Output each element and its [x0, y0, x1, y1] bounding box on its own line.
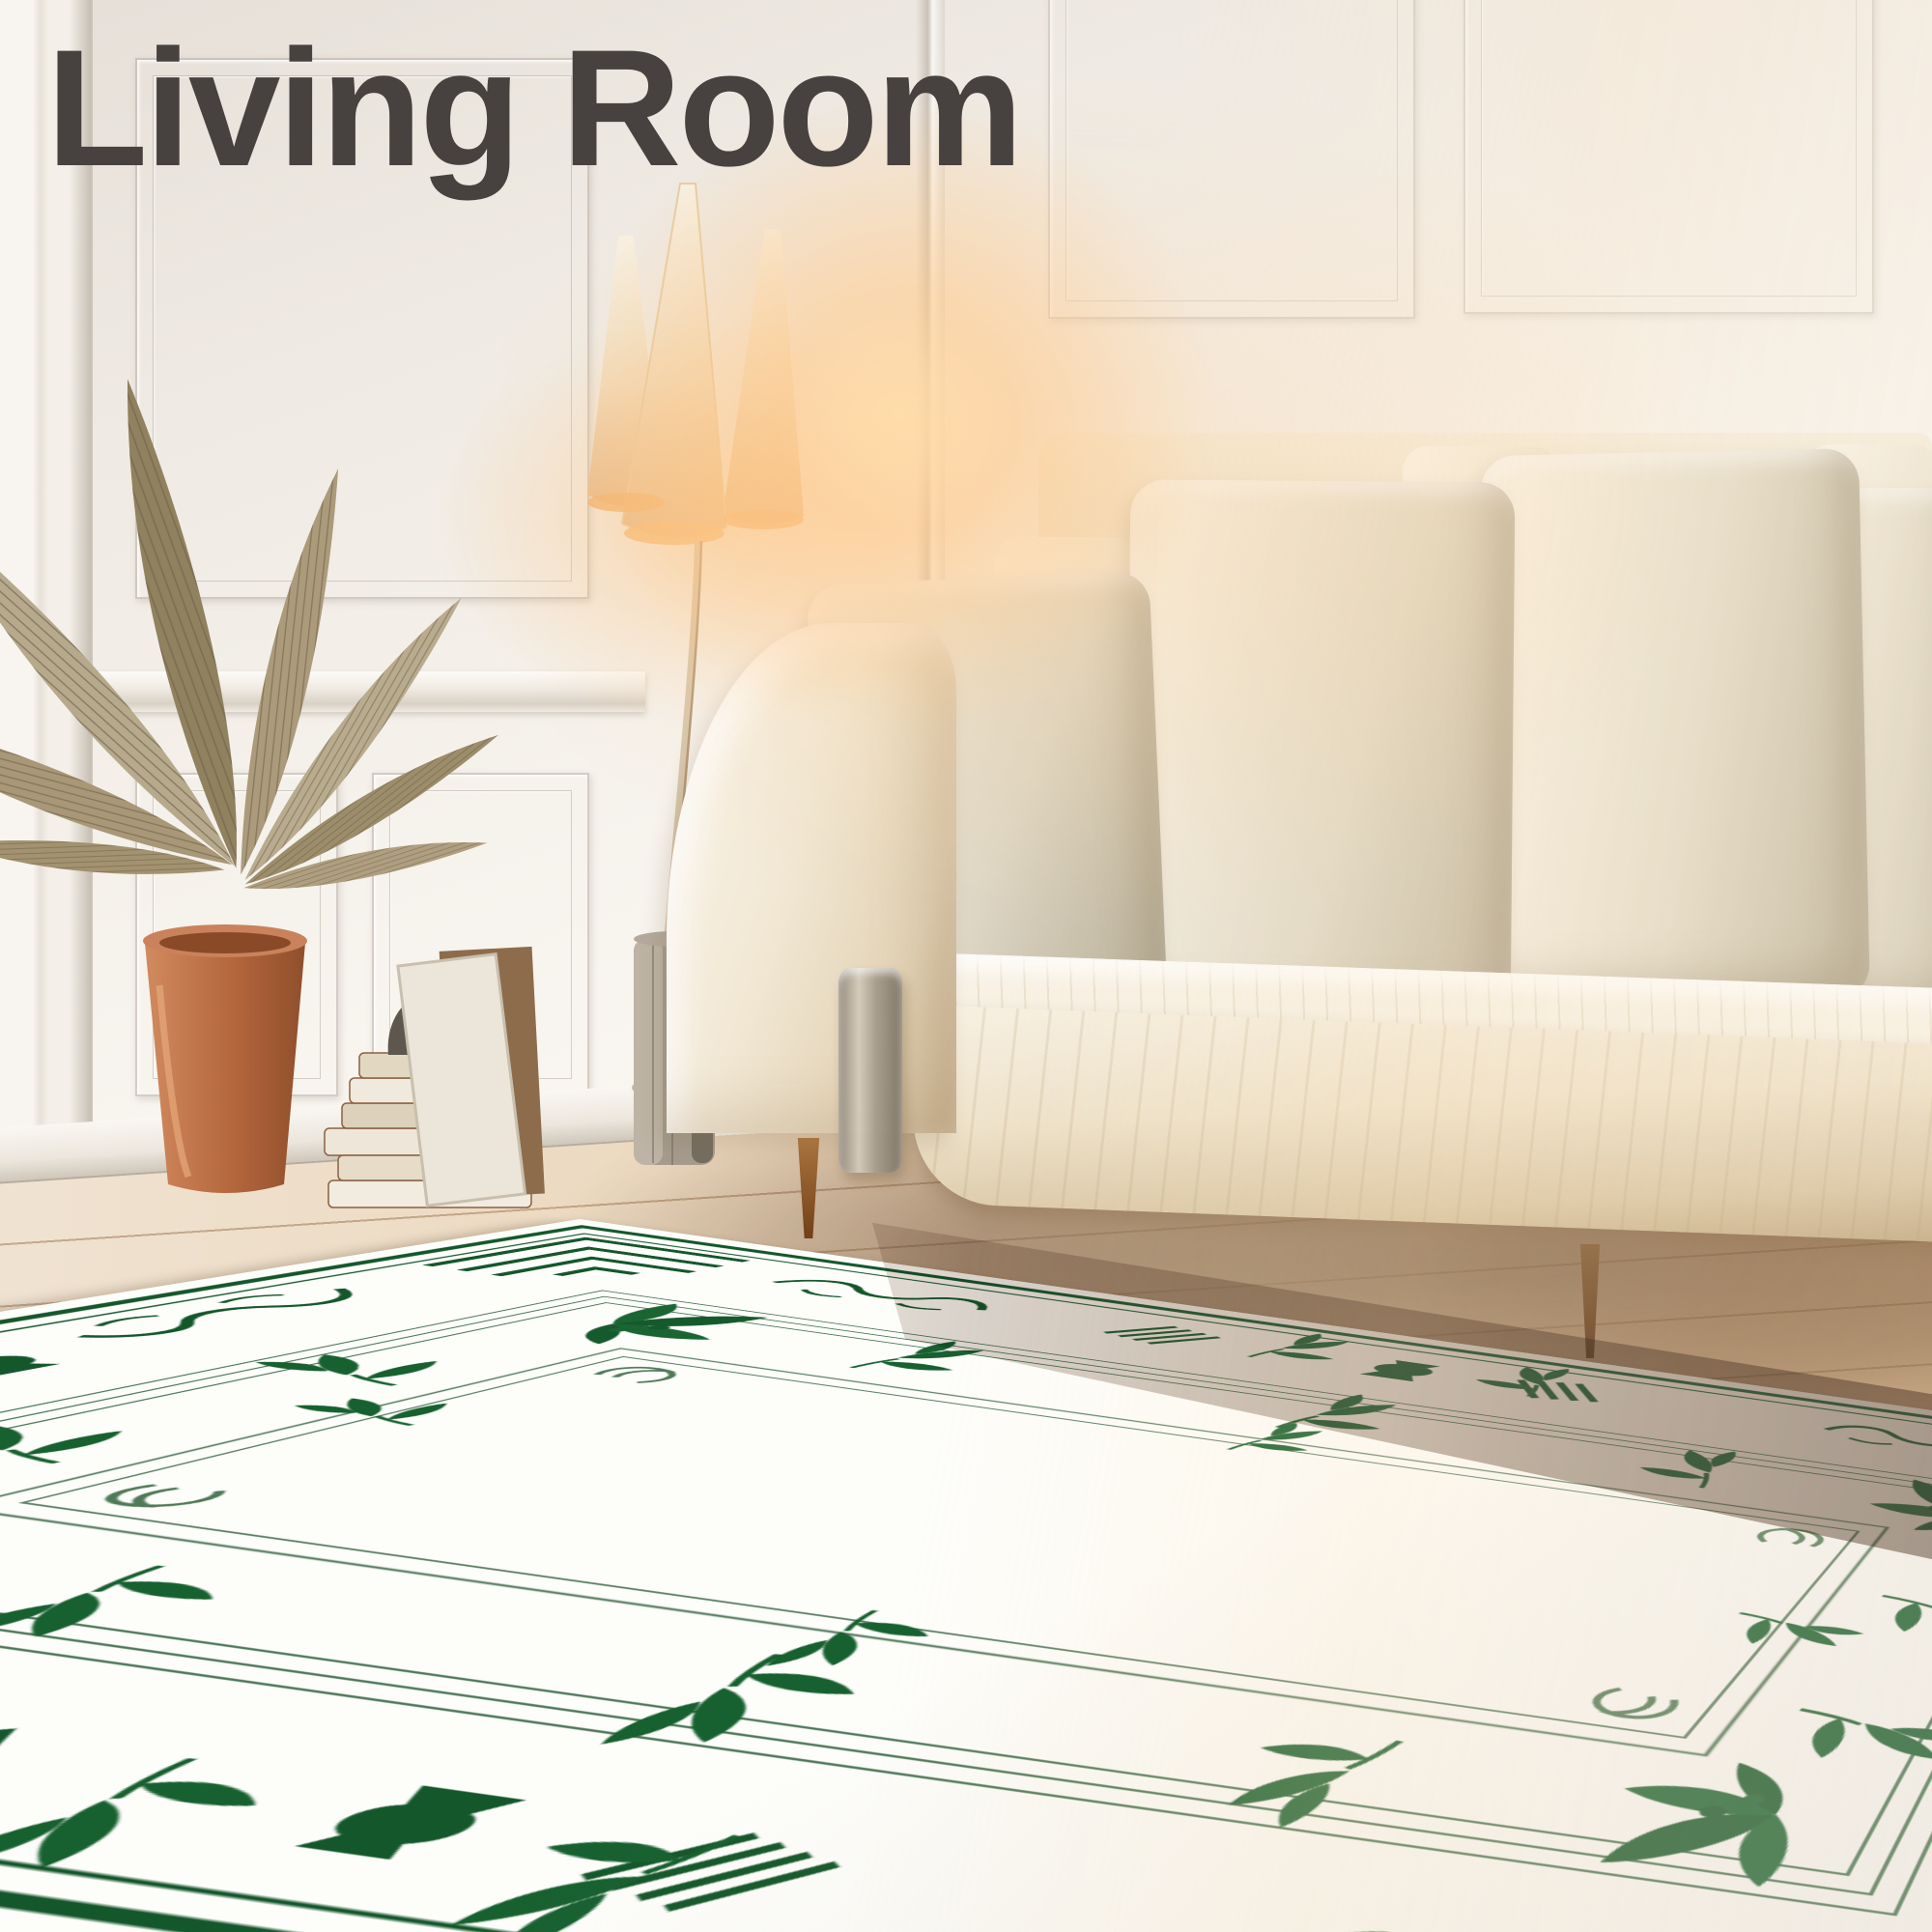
sofa-arm	[667, 623, 956, 1133]
pillow-2	[1126, 479, 1516, 1028]
glass-vase	[838, 968, 902, 1173]
page-title: Living Room	[46, 14, 1021, 205]
living-room-photo: Living Room	[0, 0, 1932, 1932]
sofa-base	[910, 1005, 1932, 1245]
sofa-leg-left	[779, 1138, 838, 1238]
pillow-3	[1480, 448, 1870, 1007]
